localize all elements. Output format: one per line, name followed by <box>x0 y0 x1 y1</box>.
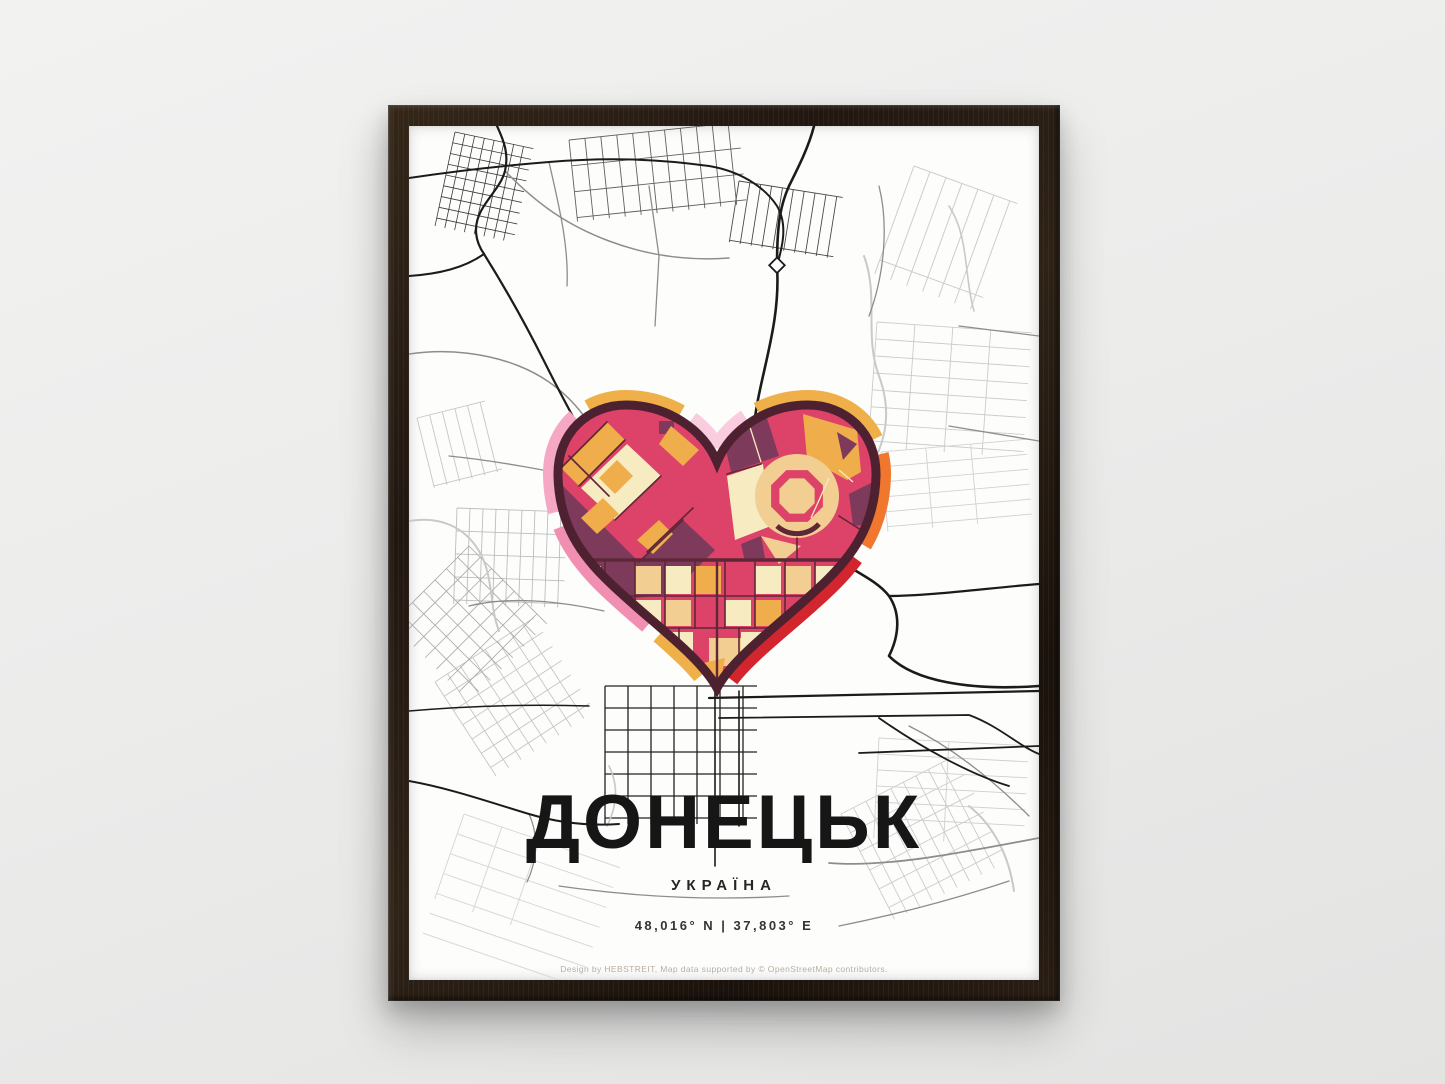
map-poster: ДОНЕЦЬК УКРАЇНА 48,016° N | 37,803° E De… <box>409 126 1039 980</box>
city-street-map <box>409 126 1039 980</box>
credit-line: Design by HEBSTREIT, Map data supported … <box>409 964 1039 974</box>
wall-background: ДОНЕЦЬК УКРАЇНА 48,016° N | 37,803° E De… <box>0 0 1445 1084</box>
poster-frame: ДОНЕЦЬК УКРАЇНА 48,016° N | 37,803° E De… <box>388 105 1060 1001</box>
heart-map-graphic <box>555 401 879 693</box>
